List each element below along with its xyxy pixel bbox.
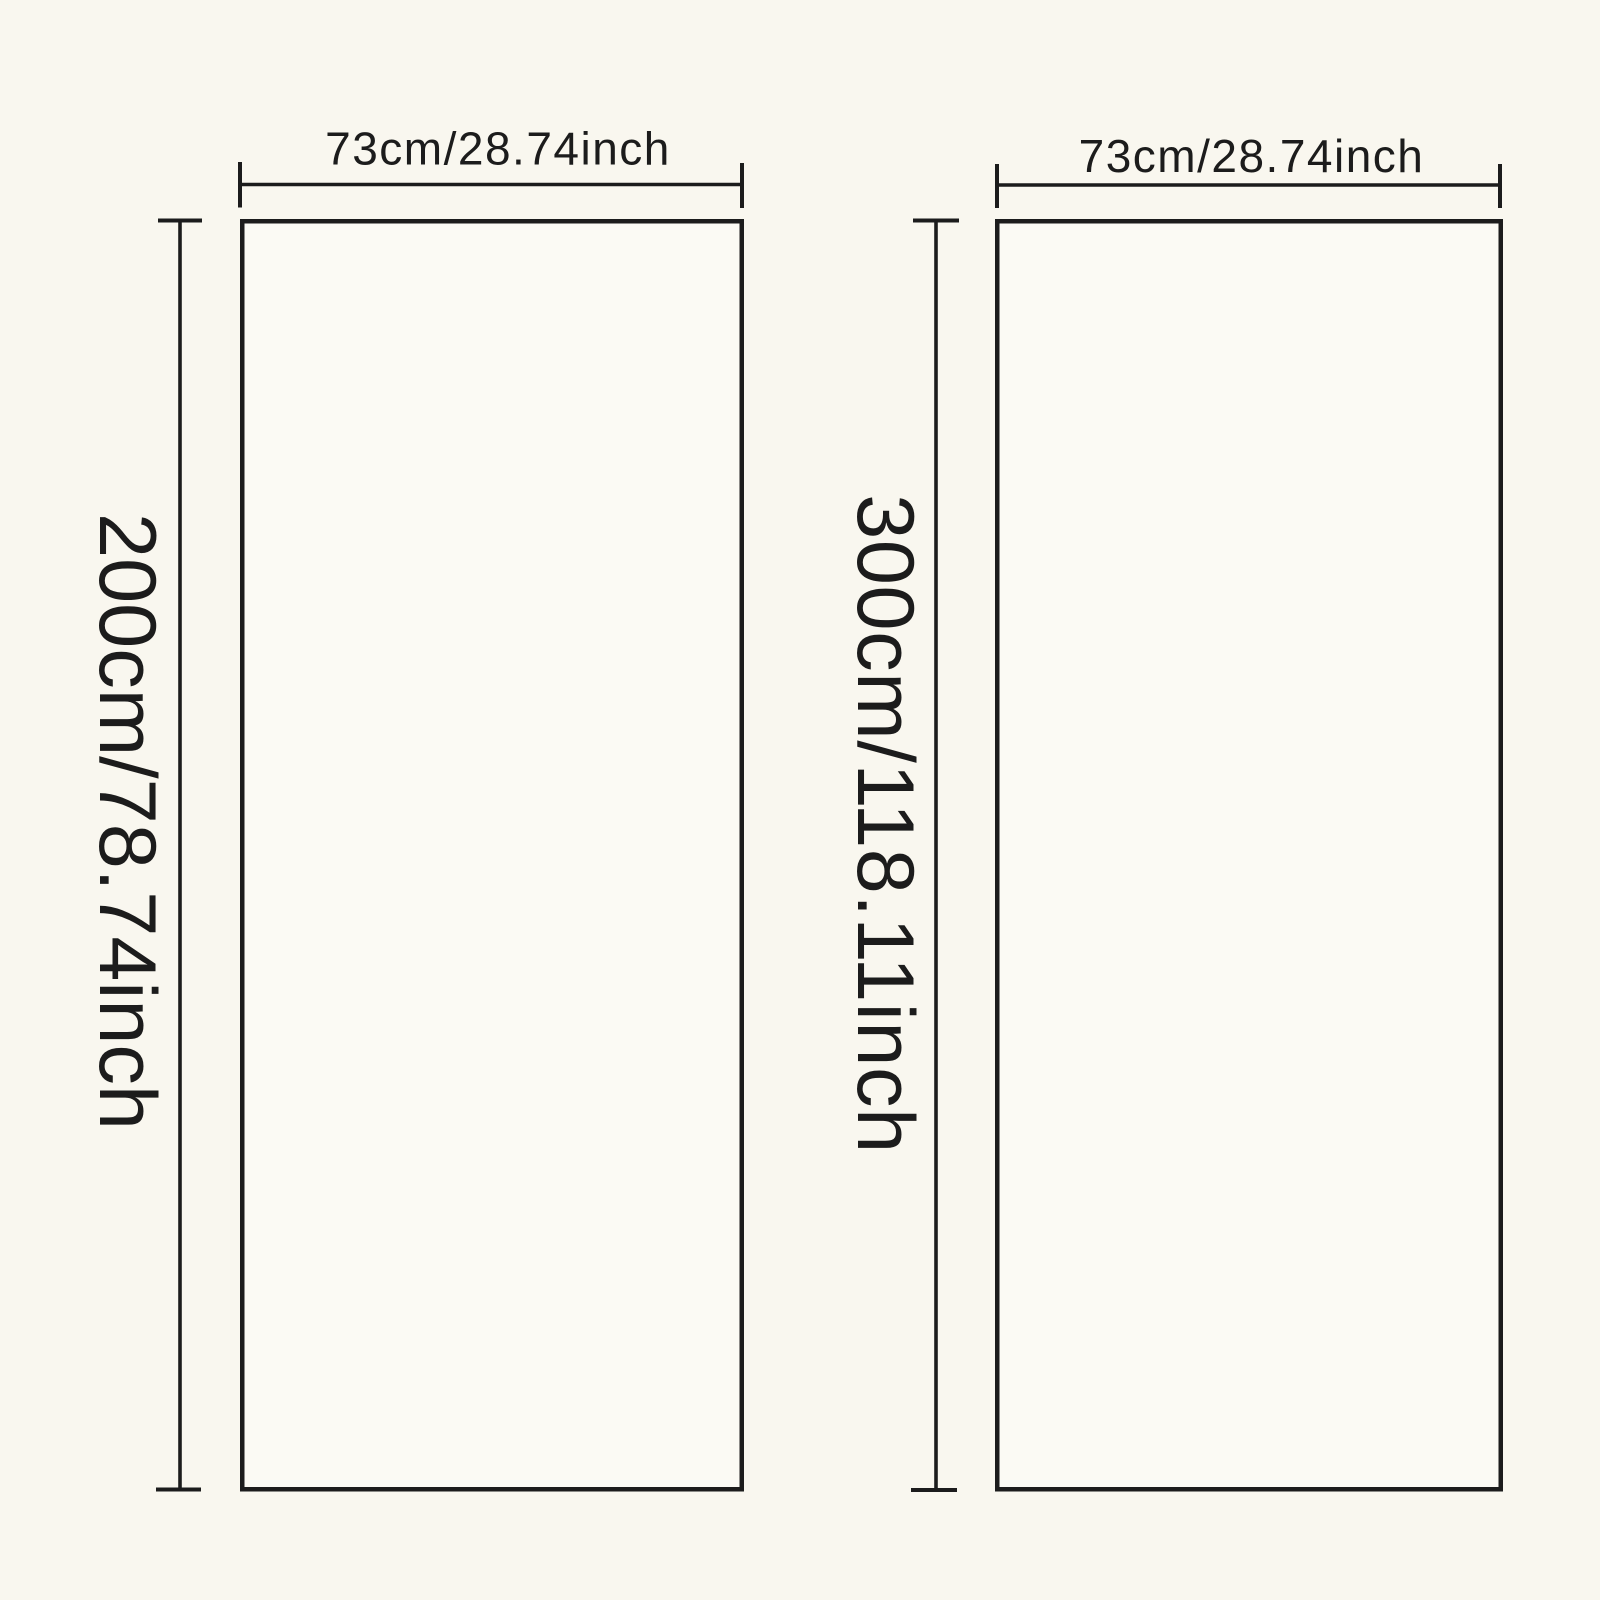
svg-text:73cm/28.74inch: 73cm/28.74inch xyxy=(1079,130,1425,182)
svg-text:200cm/78.74inch: 200cm/78.74inch xyxy=(82,513,172,1130)
svg-text:300cm/118.11inch: 300cm/118.11inch xyxy=(840,494,930,1154)
svg-text:73cm/28.74inch: 73cm/28.74inch xyxy=(325,123,671,175)
